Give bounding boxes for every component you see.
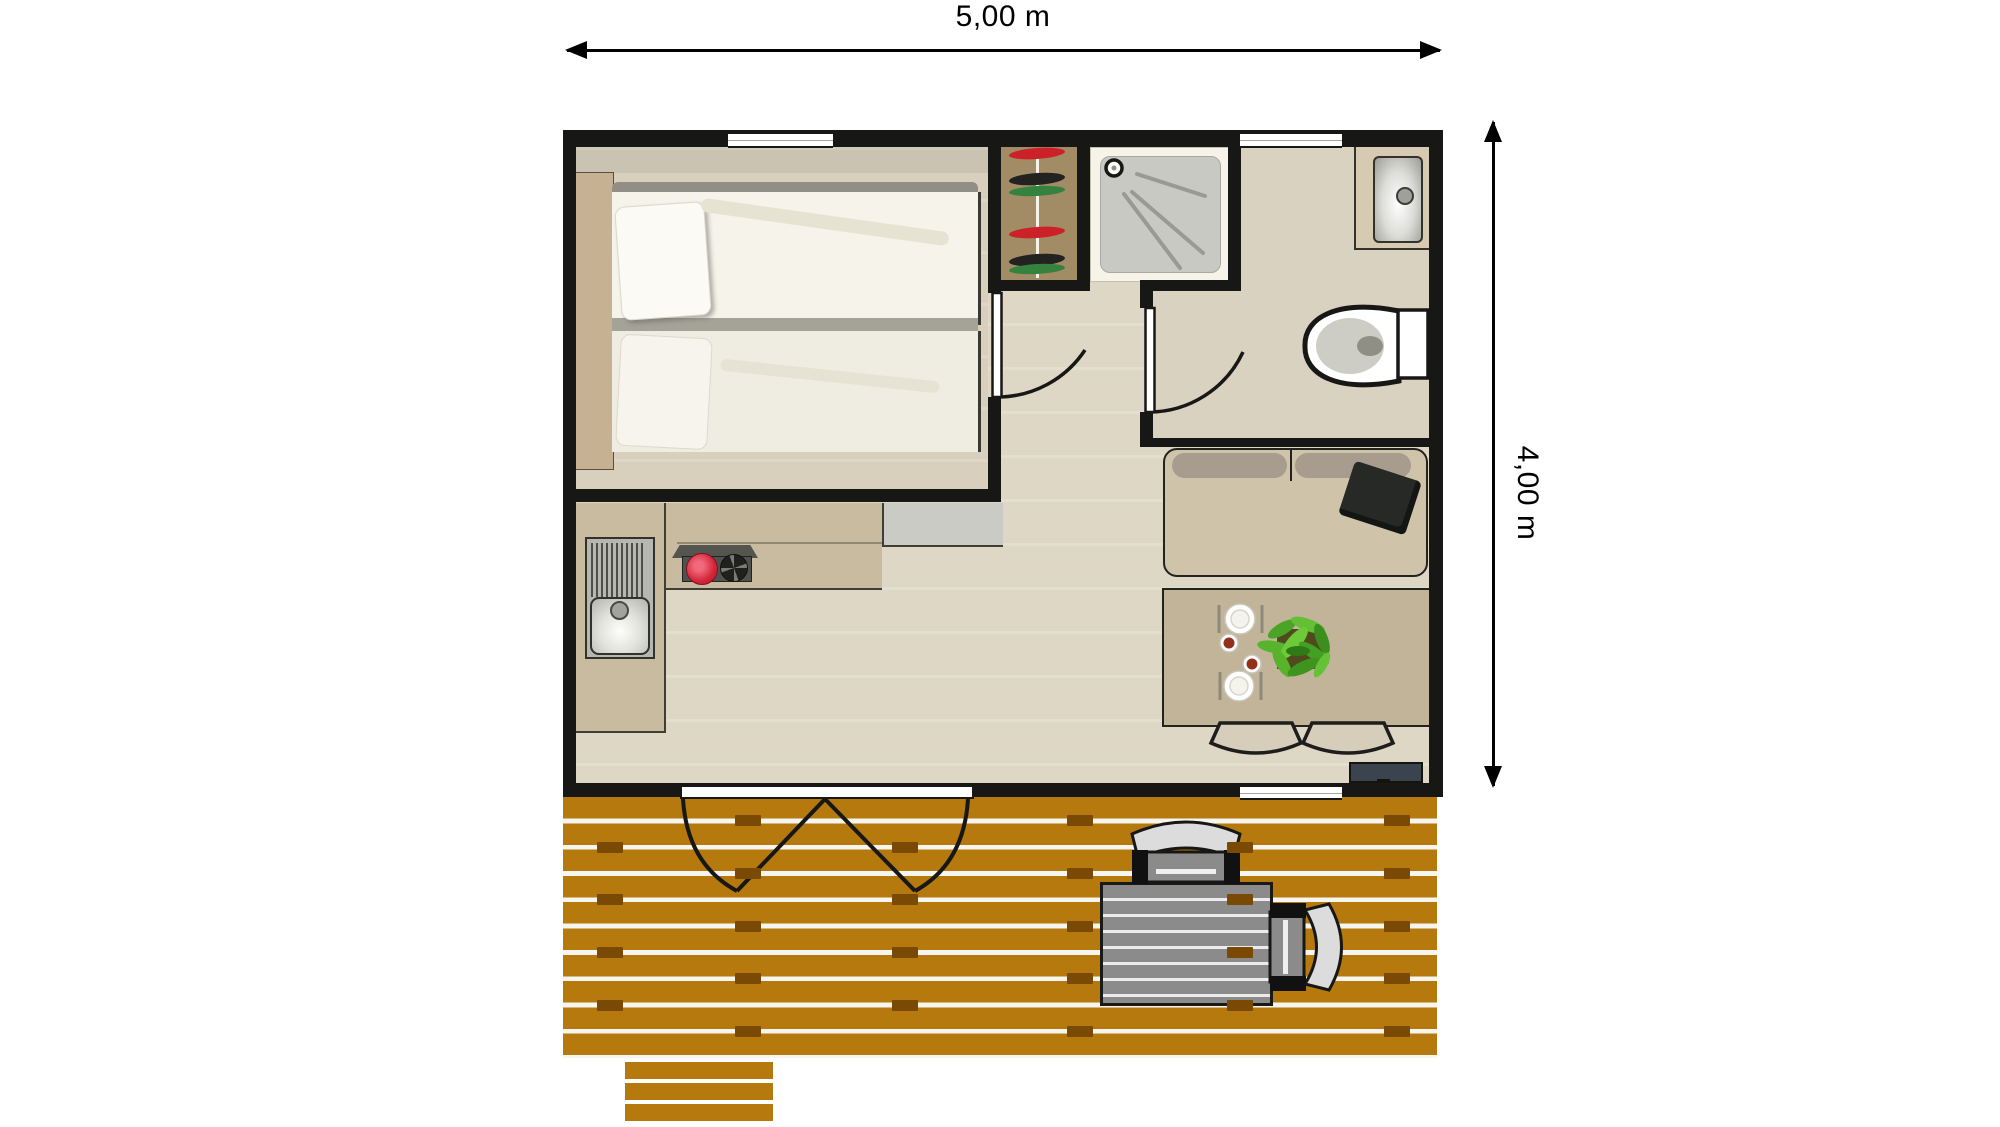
arrow-down-icon xyxy=(1484,766,1502,788)
floor-plan-scene: 5,00 m 4,00 m xyxy=(0,0,2000,1127)
deck-plank-joint xyxy=(1384,868,1410,879)
wall-bathroom-bottom xyxy=(1140,438,1432,447)
terrace-deck xyxy=(563,797,1437,1058)
deck-plank-joint xyxy=(735,815,761,826)
window-bathroom xyxy=(1240,132,1342,148)
arrow-left-icon xyxy=(565,41,587,59)
arrow-right-icon xyxy=(1420,41,1442,59)
deck-plank-joint xyxy=(1067,815,1093,826)
deck-plank-joint xyxy=(1384,973,1410,984)
deck-plank-joint xyxy=(1067,868,1093,879)
drainboard xyxy=(591,543,645,597)
burner-on xyxy=(686,553,718,585)
sofa-divider xyxy=(1290,449,1292,481)
deck-plank-joint xyxy=(1384,815,1410,826)
arrow-up-icon xyxy=(1484,120,1502,142)
wall-shower-bath-divider xyxy=(1228,147,1241,291)
deck-plank-joint xyxy=(1384,921,1410,932)
window-living xyxy=(1240,785,1342,800)
burner-off xyxy=(720,554,748,582)
deck-plank-joint xyxy=(892,842,918,853)
wall-closet-bottom xyxy=(988,280,1090,291)
terrace-step xyxy=(625,1083,773,1100)
deck-plank-joint xyxy=(1067,973,1093,984)
window-bedroom xyxy=(728,132,833,148)
deck-plank-joint xyxy=(1227,894,1253,905)
wall-closet-shower-divider xyxy=(1077,147,1090,280)
height-dimension-line xyxy=(1492,122,1495,786)
deck-plank-joint xyxy=(1227,842,1253,853)
deck-plank-joint xyxy=(597,947,623,958)
wall-bathroom-left-upper xyxy=(1140,280,1153,308)
wall-shower-bottom xyxy=(1140,280,1241,291)
sofa-cushion xyxy=(1172,453,1287,478)
plant-pot xyxy=(1277,629,1323,669)
appliance-block xyxy=(882,503,1003,547)
shower-tray xyxy=(1100,156,1221,273)
deck-plank-joint xyxy=(735,921,761,932)
deck-plank-joint xyxy=(1384,1026,1410,1037)
deck-plank-joint xyxy=(892,947,918,958)
kitchen-counter-edge xyxy=(677,542,882,544)
pillow xyxy=(615,334,713,451)
deck-plank-joint xyxy=(1227,1000,1253,1011)
deck-plank-joint xyxy=(892,894,918,905)
deck-plank-joint xyxy=(597,1000,623,1011)
basin-drain xyxy=(1396,187,1414,205)
pillow xyxy=(614,201,712,321)
wall-bedroom-right-lower xyxy=(988,397,1001,502)
deck-plank-joint xyxy=(597,842,623,853)
deck-plank-joint xyxy=(735,1026,761,1037)
entrance-door-threshold xyxy=(680,785,974,799)
terrace-step xyxy=(625,1062,773,1079)
deck-plank-joint xyxy=(1067,921,1093,932)
wall-bedroom-bottom xyxy=(563,489,1001,502)
deck-plank-joint xyxy=(597,894,623,905)
deck-plank-joint xyxy=(735,973,761,984)
wall-right xyxy=(1429,130,1443,797)
deck-plank-joint xyxy=(735,868,761,879)
deck-plank-joint xyxy=(1067,1026,1093,1037)
width-dimension-line xyxy=(567,49,1440,52)
terrace-step xyxy=(625,1104,773,1121)
height-dimension-label: 4,00 m xyxy=(1510,413,1544,573)
deck-plank-joint xyxy=(892,1000,918,1011)
wall-bedroom-right-upper xyxy=(988,147,1001,293)
deck-plank-joint xyxy=(1227,947,1253,958)
bedroom-wall-shadow xyxy=(576,147,988,173)
sink-drain xyxy=(610,601,629,620)
wall-left xyxy=(563,130,576,797)
width-dimension-label: 5,00 m xyxy=(903,0,1103,34)
